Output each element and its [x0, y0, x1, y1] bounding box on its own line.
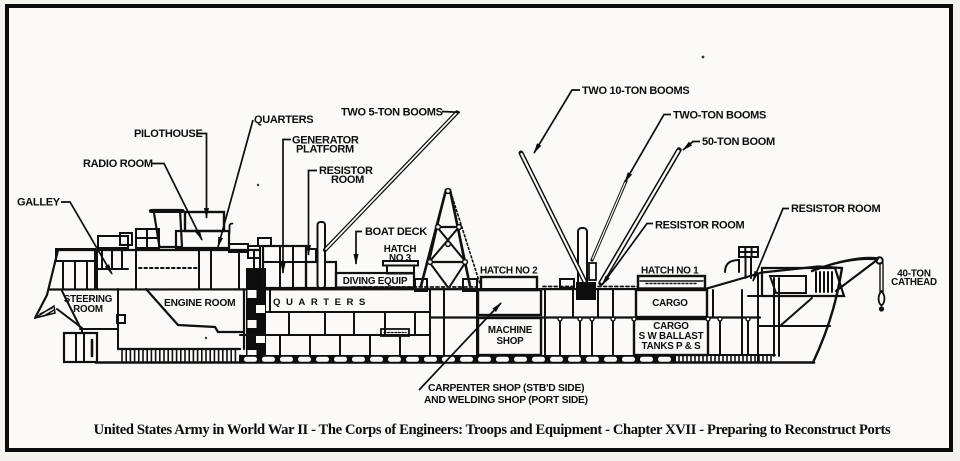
svg-text:ROOM: ROOM	[73, 304, 103, 315]
svg-text:PILOTHOUSE: PILOTHOUSE	[134, 128, 203, 140]
svg-text:NO 3: NO 3	[389, 253, 412, 264]
svg-text:QUARTERS: QUARTERS	[254, 114, 313, 126]
svg-text:PLATFORM: PLATFORM	[296, 144, 354, 156]
svg-text:SHOP: SHOP	[497, 336, 525, 347]
svg-text:TWO 5-TON BOOMS: TWO 5-TON BOOMS	[341, 107, 443, 119]
svg-text:TWO-TON BOOMS: TWO-TON BOOMS	[673, 110, 766, 122]
svg-text:HATCH NO 2: HATCH NO 2	[480, 266, 538, 277]
svg-text:QUARTERS: QUARTERS	[273, 297, 371, 308]
svg-text:CATHEAD: CATHEAD	[891, 277, 937, 288]
svg-text:RADIO ROOM: RADIO ROOM	[83, 158, 153, 170]
svg-text:ROOM: ROOM	[331, 174, 364, 186]
svg-text:CARGO: CARGO	[652, 298, 688, 309]
svg-text:BOAT DECK: BOAT DECK	[365, 226, 427, 238]
svg-text:AND WELDING SHOP (PORT SIDE): AND WELDING SHOP (PORT SIDE)	[424, 395, 588, 406]
svg-text:ENGINE ROOM: ENGINE ROOM	[164, 298, 235, 309]
svg-text:CARPENTER SHOP (STB'D SIDE): CARPENTER SHOP (STB'D SIDE)	[428, 383, 584, 394]
svg-text:HATCH NO 1: HATCH NO 1	[641, 266, 699, 277]
svg-text:GALLEY: GALLEY	[17, 196, 61, 208]
svg-text:TANKS P & S: TANKS P & S	[642, 341, 702, 352]
svg-text:RESISTOR ROOM: RESISTOR ROOM	[791, 203, 881, 215]
svg-text:MACHINE: MACHINE	[488, 325, 533, 336]
svg-text:50-TON BOOM: 50-TON BOOM	[702, 136, 775, 148]
svg-text:United States Army in World Wa: United States Army in World War II - The…	[94, 422, 891, 438]
svg-text:DIVING EQUIP: DIVING EQUIP	[343, 276, 408, 287]
svg-text:RESISTOR ROOM: RESISTOR ROOM	[655, 220, 745, 232]
svg-text:TWO 10-TON BOOMS: TWO 10-TON BOOMS	[582, 85, 689, 97]
